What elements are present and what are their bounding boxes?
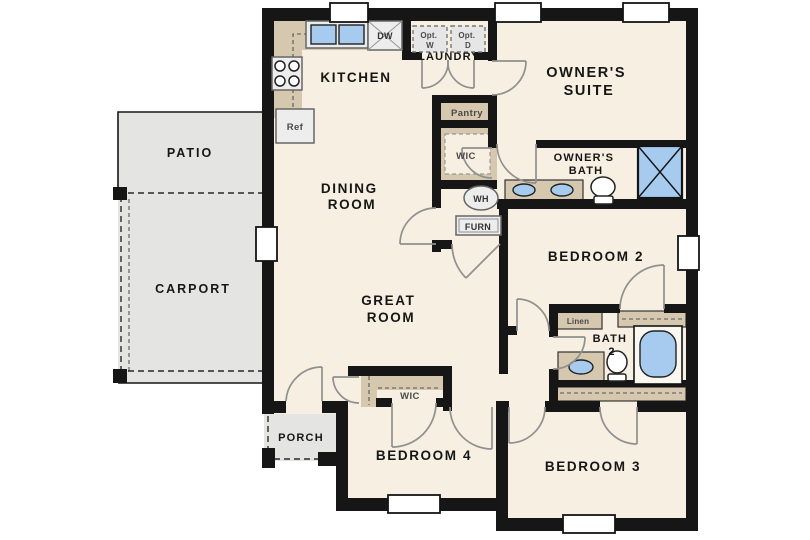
room-label-porch: PORCH — [278, 432, 324, 444]
toilet-owners-bath — [591, 177, 615, 197]
wall — [664, 304, 686, 313]
room-label-kitchen: KITCHEN — [320, 70, 391, 85]
wall — [443, 366, 452, 411]
window-bedroom4 — [388, 495, 440, 513]
burner — [275, 61, 285, 71]
floor-plan-page: PATIO CARPORT PORCH KITCHEN LAUNDRY DINI… — [0, 0, 810, 540]
label-furnace: FURN — [465, 222, 491, 232]
wall — [376, 398, 392, 407]
window-kitchen — [330, 3, 368, 22]
owners-bath-sink — [551, 184, 573, 196]
bedroom3-closet-shelf — [556, 387, 686, 401]
wall — [549, 304, 558, 337]
wall — [496, 401, 509, 412]
toilet-base-bath2 — [608, 374, 626, 381]
window-bedroom3 — [563, 515, 615, 533]
wall — [496, 401, 508, 531]
wall — [545, 401, 600, 412]
wall — [432, 120, 497, 128]
label-water-heater: WH — [473, 194, 489, 204]
carport-post — [113, 369, 127, 383]
label-bedroom4-wic: WIC — [400, 391, 420, 402]
wall — [336, 498, 390, 511]
kitchen-sink-basin — [311, 25, 336, 44]
room-label-bedroom2: BEDROOM 2 — [548, 249, 644, 264]
label-dishwasher: DW — [377, 31, 393, 41]
label-refrigerator: Ref — [287, 122, 304, 133]
room-label-dining: DINING ROOM — [321, 181, 383, 212]
label-owners-wic: WIC — [456, 151, 476, 162]
carport-entry-door — [256, 227, 277, 261]
owners-bath-sink — [513, 184, 535, 196]
wall — [262, 401, 286, 413]
room-label-patio: PATIO — [167, 146, 213, 160]
wall — [432, 95, 497, 103]
bathtub — [640, 331, 676, 377]
wall — [336, 401, 348, 511]
burner — [275, 76, 285, 86]
wall — [496, 518, 565, 531]
window-bedroom2 — [678, 236, 699, 270]
room-label-carport: CARPORT — [155, 282, 231, 296]
wall — [637, 401, 686, 412]
wall — [432, 95, 441, 208]
wall — [318, 452, 336, 466]
wall — [262, 448, 275, 468]
burner — [289, 61, 299, 71]
toilet-base-owners-bath — [594, 196, 613, 204]
wall — [497, 199, 686, 209]
wall — [549, 304, 620, 313]
window-owners-suite-2 — [623, 3, 669, 22]
room-label-bedroom4: BEDROOM 4 — [376, 448, 472, 463]
label-pantry: Pantry — [451, 108, 483, 119]
wall — [348, 366, 452, 376]
floor-plan: PATIO CARPORT PORCH KITCHEN LAUNDRY DINI… — [0, 0, 810, 540]
wall — [436, 398, 443, 407]
label-linen: Linen — [567, 317, 589, 326]
carport-post — [113, 187, 127, 200]
kitchen-sink-basin — [339, 25, 364, 44]
room-label-laundry: LAUNDRY — [418, 51, 480, 63]
room-label-bedroom3: BEDROOM 3 — [545, 459, 641, 474]
window-owners-suite-1 — [495, 3, 541, 22]
wall — [499, 326, 517, 335]
wall — [488, 21, 497, 61]
burner — [289, 76, 299, 86]
wall — [613, 518, 698, 531]
